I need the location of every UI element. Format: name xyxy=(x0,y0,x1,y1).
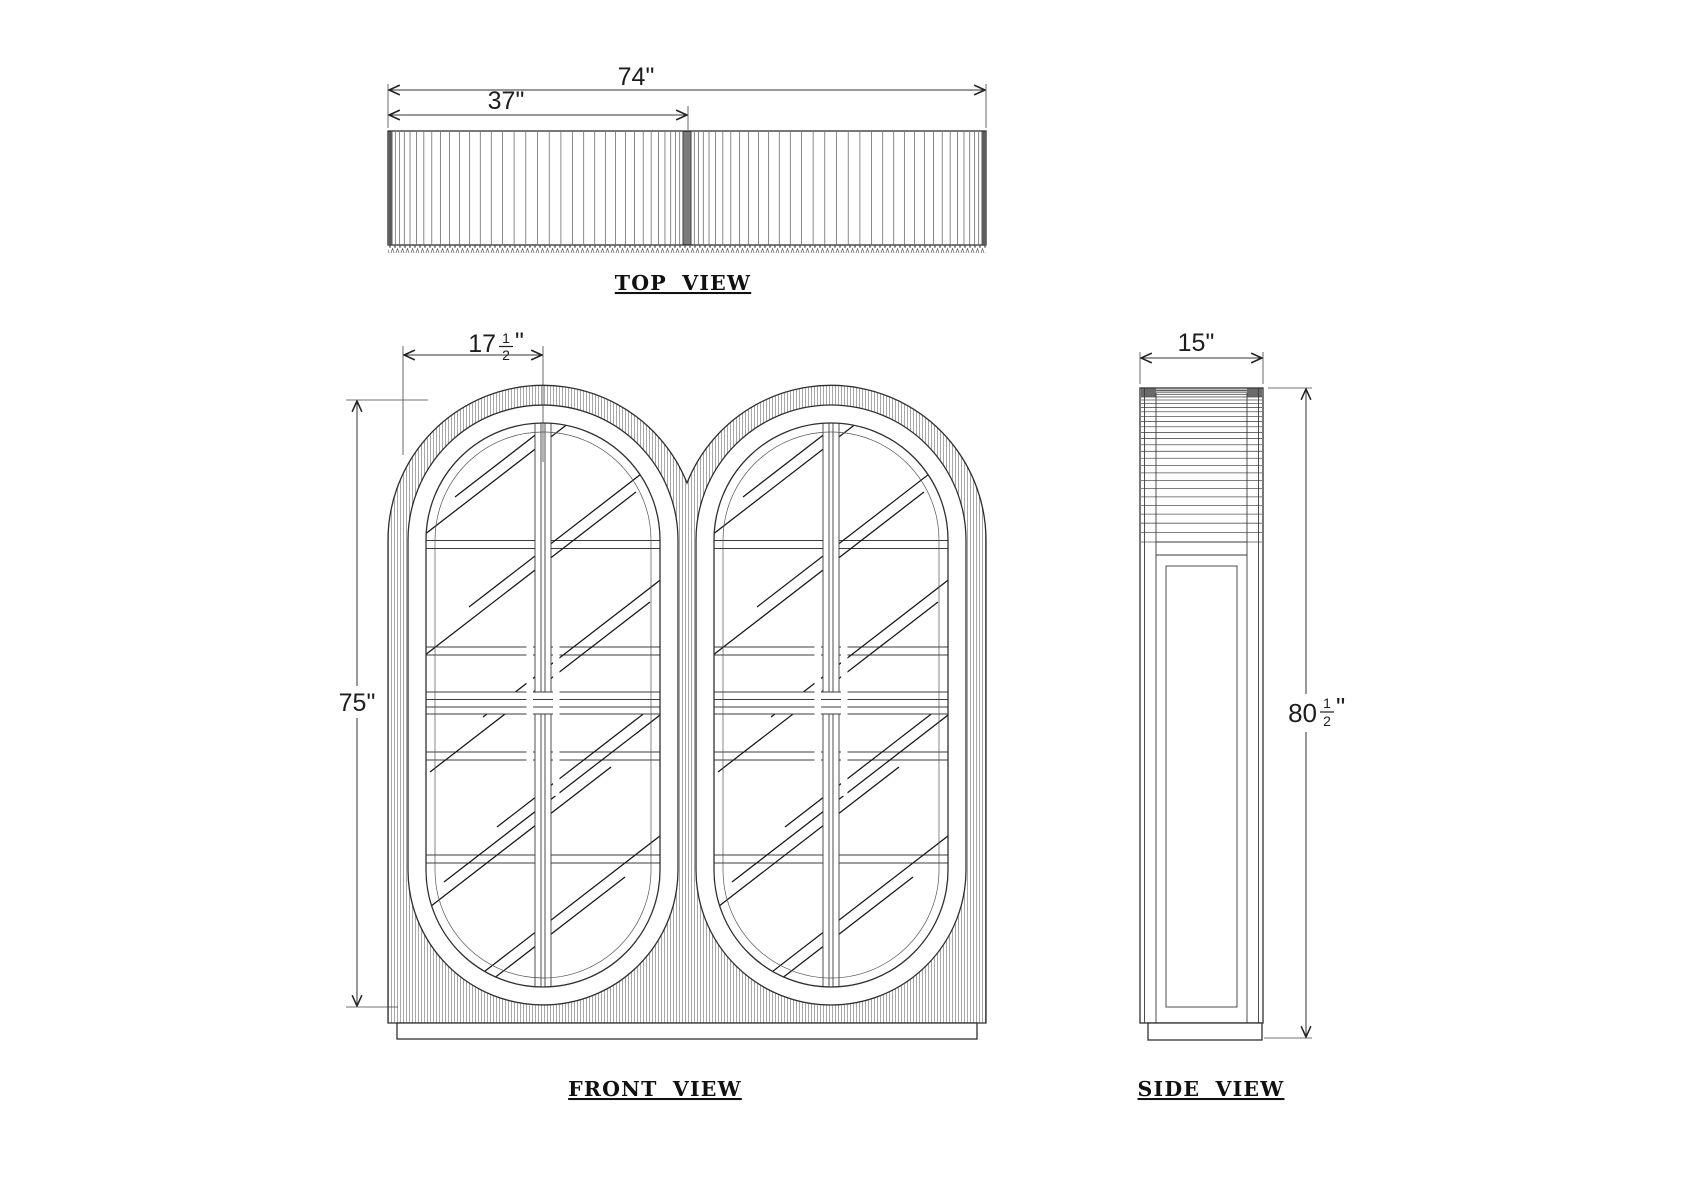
front-view: 17 1 2 " 75" FRONT VIEW xyxy=(339,272,1005,1101)
dimension-80-5: 80 1 2 " xyxy=(1264,388,1345,1038)
technical-drawing-canvas: 74" 37" TOP VIEW xyxy=(0,0,1684,1190)
dim-side-depth: 15" xyxy=(1178,329,1215,357)
top-view-label: TOP VIEW xyxy=(615,271,751,295)
dim-front-door-width-unit: " xyxy=(515,328,524,356)
top-view-left-edge-band xyxy=(389,132,393,245)
dimension-sheet: 74" 37" TOP VIEW xyxy=(0,0,1684,1190)
dim-front-door-width-numerator: 1 xyxy=(502,330,510,346)
door-handle-right xyxy=(553,610,560,796)
top-view-scalloped-front-edge xyxy=(388,245,986,253)
dim-top-half-width: 37" xyxy=(488,87,525,115)
front-plinth-base xyxy=(397,1023,977,1039)
top-view-right-edge-band xyxy=(982,132,986,245)
dimension-37: 37" xyxy=(389,87,688,130)
door-handle-left xyxy=(815,610,822,796)
dimension-15: 15" xyxy=(1140,329,1263,384)
mid-mullion xyxy=(423,692,663,714)
dim-front-door-width-whole: 17 xyxy=(468,330,496,358)
dimension-74: 74" xyxy=(388,63,986,128)
side-top-right-block xyxy=(1247,389,1262,397)
side-view-label: SIDE VIEW xyxy=(1138,1077,1285,1101)
top-view: 74" 37" TOP VIEW xyxy=(388,63,986,295)
side-body xyxy=(1140,388,1263,1023)
dim-top-total-width: 74" xyxy=(618,63,655,91)
front-view-label: FRONT VIEW xyxy=(568,1077,742,1101)
dim-side-height-denominator: 2 xyxy=(1323,713,1331,729)
dim-side-height-whole: 80 xyxy=(1288,698,1317,728)
door-handle-left xyxy=(527,610,534,796)
side-view: 15" 80 1 2 " SIDE VIEW xyxy=(1138,329,1346,1101)
mid-mullion xyxy=(711,692,951,714)
door-handle-right xyxy=(841,610,848,796)
dim-front-door-width-denominator: 2 xyxy=(502,347,510,363)
dim-side-height-unit: " xyxy=(1336,692,1345,722)
dim-front-body-height: 75" xyxy=(339,689,376,717)
top-view-center-joint-band xyxy=(683,132,691,245)
side-plinth-base xyxy=(1148,1023,1262,1040)
side-top-left-block xyxy=(1141,389,1156,397)
dim-side-height-numerator: 1 xyxy=(1323,695,1331,711)
